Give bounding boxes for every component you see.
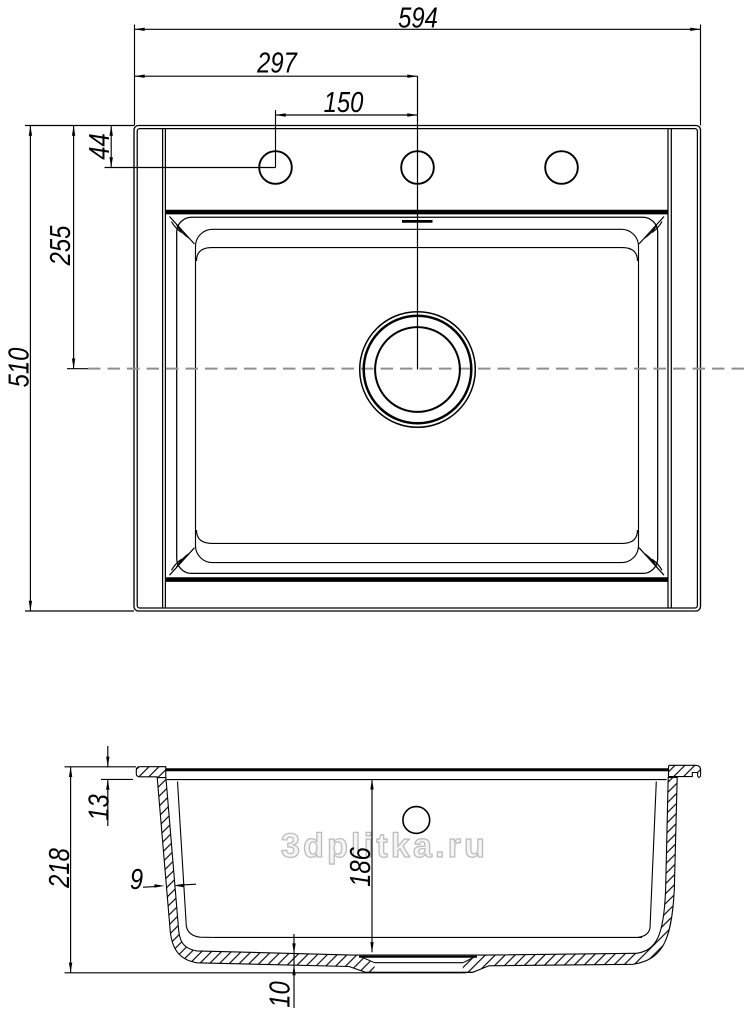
svg-text:186: 186 <box>345 846 377 886</box>
svg-text:9: 9 <box>130 864 143 896</box>
svg-text:218: 218 <box>44 848 76 889</box>
svg-text:10: 10 <box>265 981 297 1007</box>
svg-text:150: 150 <box>324 87 364 119</box>
svg-text:297: 297 <box>256 48 298 80</box>
svg-text:13: 13 <box>84 794 116 820</box>
svg-text:3dplitka.ru: 3dplitka.ru <box>281 827 488 865</box>
svg-text:44: 44 <box>84 133 116 159</box>
svg-text:255: 255 <box>45 225 77 266</box>
svg-text:594: 594 <box>398 3 438 35</box>
svg-text:510: 510 <box>3 348 35 388</box>
